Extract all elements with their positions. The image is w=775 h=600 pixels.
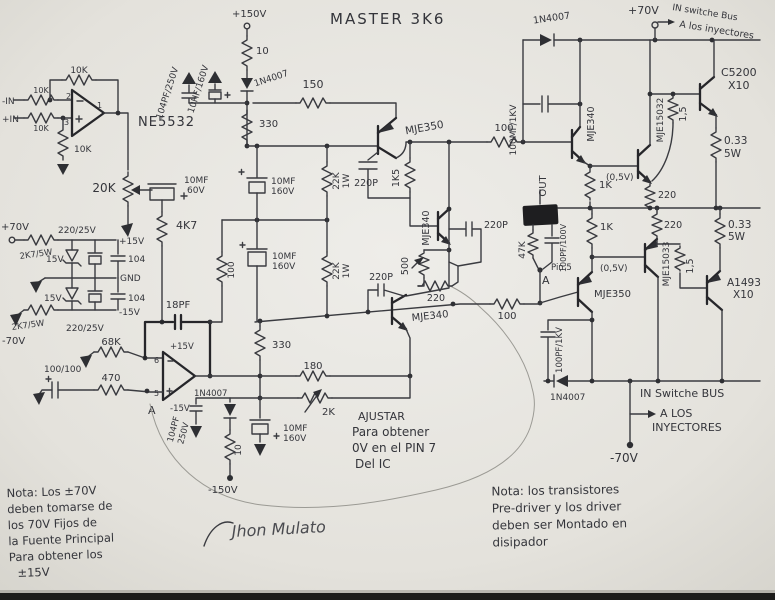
label-v150-neg: -150V [208, 485, 238, 496]
label-inj-bottom-1: A LOS [660, 407, 692, 420]
label-res1k5: 1K5 [391, 169, 402, 187]
label-res1k-neg: 1K [600, 222, 613, 233]
label-res100-neg: 100 [497, 311, 516, 322]
label-cap-c-1: 10MF [283, 424, 307, 434]
label-cap220p-b: 220P [484, 220, 508, 231]
label-res-68k: 68K [101, 337, 121, 348]
label-res1-5-neg: 1,5 [685, 258, 696, 273]
label-cap-b-1: 10MF [272, 252, 296, 262]
label-res033-neg-1: 0.33 [728, 219, 751, 231]
label-res-470: 470 [101, 373, 120, 384]
label-psu-cer-bot: 104 [128, 294, 145, 304]
label-in-neg: -IN [2, 97, 15, 107]
label-res033-pos-2: 5W [724, 148, 742, 160]
label-cap-60v: 60V [187, 186, 205, 196]
label-pot-20k: 20K [92, 181, 116, 195]
label-pin5: 5 [154, 389, 159, 398]
label-bus-bottom: IN Switche BUS [640, 387, 724, 400]
label-out: OUT [538, 174, 549, 196]
label-v70-pos: +70V [628, 4, 659, 17]
label-res150: 150 [303, 78, 324, 91]
label-fb-res-100: 100 [227, 261, 237, 278]
label-vbe-neg: (0,5V) [600, 264, 628, 274]
label-opb-vpos: +15V [170, 342, 194, 352]
label-in-neg-res: 10K [33, 86, 49, 95]
label-gnd-res: 10K [74, 145, 92, 155]
label-cap-b-2: 160V [272, 262, 296, 272]
label-cap-18pf: 18PF [166, 300, 191, 311]
label-psu-zener-top: 15V [46, 255, 64, 265]
label-q-final-neg-2: X10 [733, 289, 754, 301]
label-q-final-neg-1: A1493 [727, 277, 761, 289]
label-cap-c-2: 160V [283, 434, 307, 444]
label-res10-bot: 10 [234, 444, 244, 456]
label-pin1: 1 [97, 101, 102, 110]
label-cap-a-2: 160V [271, 187, 295, 197]
label-res22k-b-1: 22K [332, 261, 342, 279]
note-right-line: deben ser Montado en [492, 516, 627, 532]
label-res1-5-pos: 1,5 [678, 106, 689, 121]
label-q-final-pos-1: C5200 [721, 66, 757, 79]
label-pin5-out: Pin 5 [551, 263, 572, 273]
label-q-driver-neg: MJE350 [594, 289, 631, 300]
label-q-prefinal-neg: MJE15033 [662, 242, 672, 287]
label-vbe-pos: (0,5V) [606, 173, 634, 183]
label-psu-zener-bot: 15V [44, 294, 62, 304]
label-psu-rail-neg: -15V [119, 308, 141, 318]
label-inj-bottom-2: INYECTORES [652, 421, 722, 434]
schematic-title: MASTER 3K6 [330, 10, 445, 28]
label-cap220p-a: 220P [354, 178, 378, 189]
label-psu-70n: -70V [2, 336, 25, 347]
label-cap220p-c: 220P [369, 272, 393, 283]
note-right-line: Nota: los transistores [491, 482, 619, 498]
label-res330-bot: 330 [272, 340, 291, 351]
scan-edge [0, 593, 775, 600]
label-v150-pos: +150V [232, 9, 266, 20]
label-psu-rail-pos: +15V [119, 237, 145, 247]
label-res47k: 47K [518, 240, 528, 258]
label-res033-pos-1: 0.33 [724, 135, 747, 147]
scanned-schematic-page: MASTER 3K6 10K -IN 10K +IN 10K 10K 2 3 1… [0, 0, 775, 600]
label-in-pos: +IN [2, 115, 19, 125]
label-psu-cer-top: 104 [128, 255, 145, 265]
label-diode-neg: 1N4007 [550, 393, 585, 403]
label-psu-70p: +70V [1, 222, 29, 233]
label-opb-vneg: -15V [170, 404, 190, 414]
label-ic-name: NE5532 [138, 115, 195, 130]
label-res22k-a-2: 1W [342, 174, 352, 189]
label-pin2: 2 [66, 92, 71, 101]
label-psu-cap-bot: 220/25V [66, 324, 105, 334]
label-cap-100-100: 100/100 [44, 365, 82, 375]
label-psu-gnd: GND [120, 274, 141, 284]
label-pot500: 500 [400, 257, 411, 275]
label-diode-bot: 1N4007 [194, 389, 227, 399]
label-res033-neg-2: 5W [728, 231, 746, 243]
note-adjust-line: Del IC [355, 457, 391, 471]
label-in-pos-res: 10K [33, 124, 49, 133]
label-cap-10mf: 10MF [184, 176, 208, 186]
note-adjust-line: Para obtener [352, 425, 429, 439]
label-node-a-right: A [542, 274, 550, 287]
label-res330-top: 330 [259, 119, 278, 130]
label-pin6: 6 [154, 356, 159, 365]
label-res22k-a-1: 22K [332, 171, 342, 189]
label-q-mid: MJE340 [421, 210, 432, 245]
schematic-svg: MASTER 3K6 10K -IN 10K +IN 10K 10K 2 3 1… [0, 0, 775, 600]
label-cap-100pf-1kv: 100PF/1KV [555, 327, 565, 373]
note-right-line: disipador [492, 535, 548, 550]
label-pin3: 3 [64, 118, 69, 127]
label-v70-neg: -70V [610, 451, 639, 465]
note-right-line: Pre-driver y los driver [492, 499, 622, 515]
label-q-prefinal-pos: MJE15032 [656, 98, 666, 143]
label-q-final-pos-2: X10 [728, 79, 750, 92]
label-pot2k: 2K [322, 407, 335, 418]
out-terminal-block [523, 204, 559, 226]
label-res10-top: 10 [256, 46, 269, 57]
label-res220-mid: 220 [427, 293, 445, 304]
label-res220-pos: 220 [658, 190, 676, 201]
label-res22k-b-2: 1W [342, 264, 352, 279]
note-left-line: ±15V [17, 565, 50, 580]
label-res-4k7: 4K7 [176, 219, 197, 232]
label-res180: 180 [303, 361, 322, 372]
label-feedback-res: 10K [70, 66, 88, 76]
paper-background [0, 0, 775, 600]
label-q-driver-pos: MJE340 [586, 106, 597, 141]
note-adjust-line: 0V en el PIN 7 [352, 441, 436, 455]
label-psu-cap-top: 220/25V [58, 226, 97, 236]
label-cap-a-1: 10MF [271, 177, 295, 187]
note-adjust-line: AJUSTAR [358, 410, 405, 423]
label-cap-100mf: 100MF/1KV [509, 104, 519, 156]
label-res220-neg: 220 [664, 220, 682, 231]
